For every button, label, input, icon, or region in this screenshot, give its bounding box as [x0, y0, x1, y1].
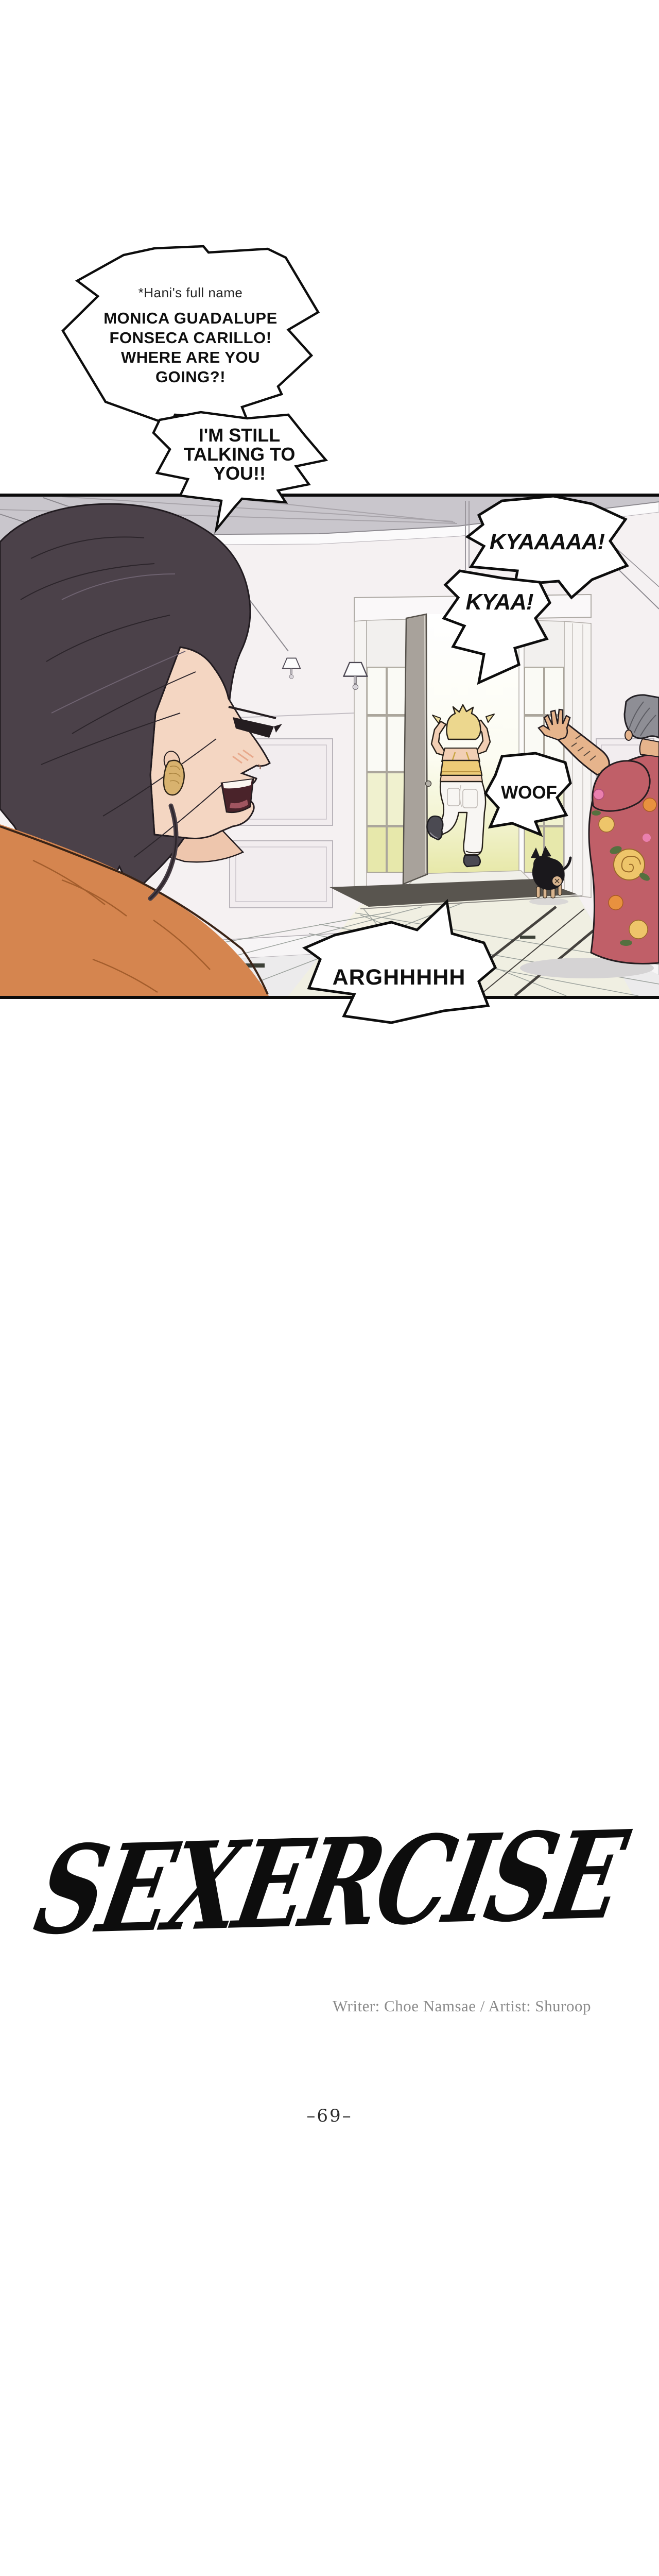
- speech-bubble-shout-2: I'M STILL TALKING TO YOU!!: [149, 407, 329, 533]
- speech-bubble-scream-small-shape: [440, 564, 559, 685]
- door-handle: [426, 781, 431, 787]
- woof-text: WOOF: [484, 782, 574, 804]
- speech-bubble-groan: ARGHHHHH: [296, 896, 502, 1030]
- scream-small-text: KYAA!: [440, 589, 559, 616]
- speech-bubble-shout: *Hani's full name MONICA GUADALUPE FONSE…: [59, 245, 322, 430]
- open-door: [403, 614, 431, 884]
- series-title: SEXERCISE: [7, 1814, 652, 1952]
- footnote-text: *Hani's full name: [59, 285, 322, 301]
- webtoon-page: *Hani's full name MONICA GUADALUPE FONSE…: [0, 0, 659, 2576]
- shout-2-text: I'M STILL TALKING TO YOU!!: [149, 426, 329, 483]
- speech-bubble-scream-small: KYAA!: [440, 564, 559, 685]
- speech-bubble-groan-shape: [296, 896, 502, 1030]
- shout-text: MONICA GUADALUPE FONSECA CARILLO! WHERE …: [59, 309, 322, 387]
- speech-bubble-woof: WOOF: [484, 753, 574, 838]
- scream-big-text: KYAAAAA!: [463, 529, 631, 556]
- episode-page-number: –69–: [0, 2106, 659, 2126]
- credits-line: Writer: Choe Namsae / Artist: Shuroop: [333, 1997, 591, 2015]
- groan-text: ARGHHHHH: [296, 964, 502, 991]
